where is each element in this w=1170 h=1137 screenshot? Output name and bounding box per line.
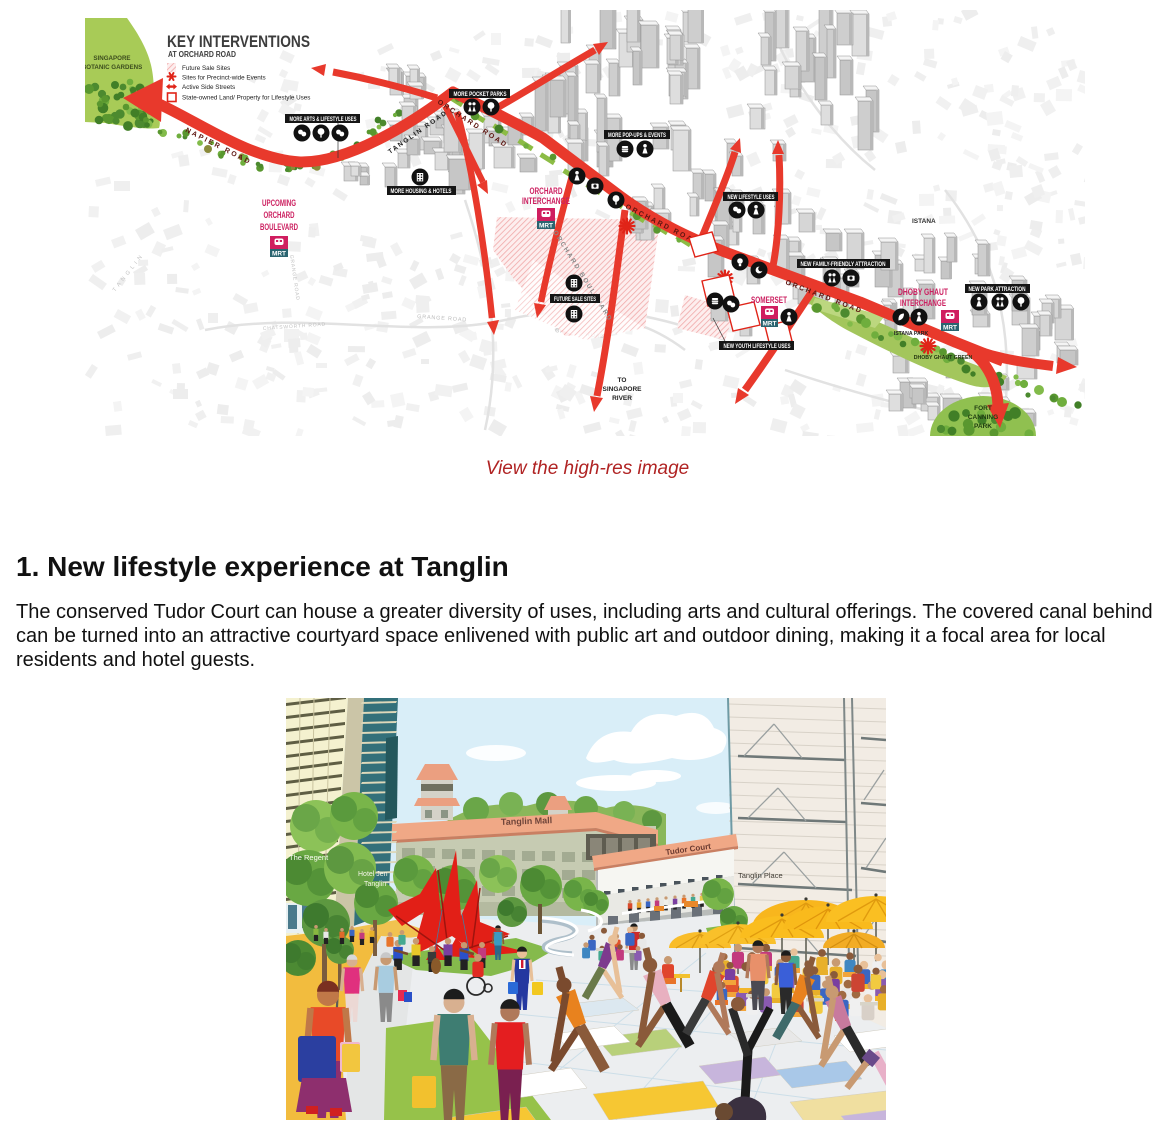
svg-text:INTERCHANGE: INTERCHANGE bbox=[900, 298, 946, 309]
svg-text:RIVER: RIVER bbox=[612, 395, 632, 402]
svg-text:MRT: MRT bbox=[943, 325, 957, 332]
svg-text:State-owned Land/ Property for: State-owned Land/ Property for Lifestyle… bbox=[182, 95, 310, 102]
svg-text:MORE HOUSING & HOTELS: MORE HOUSING & HOTELS bbox=[391, 189, 452, 195]
svg-text:PARK: PARK bbox=[974, 423, 992, 430]
svg-text:TO: TO bbox=[618, 377, 627, 384]
svg-text:Tanglin Mall: Tanglin Mall bbox=[501, 815, 553, 827]
svg-text:MORE POP-UPS & EVENTS: MORE POP-UPS & EVENTS bbox=[608, 133, 666, 139]
svg-text:MORE ARTS & LIFESTYLE USES: MORE ARTS & LIFESTYLE USES bbox=[290, 117, 357, 123]
svg-text:NEW YOUTH LIFESTYLE USES: NEW YOUTH LIFESTYLE USES bbox=[724, 344, 791, 350]
svg-text:Tanglin Place: Tanglin Place bbox=[738, 871, 783, 880]
svg-text:NEW PARK ATTRACTION: NEW PARK ATTRACTION bbox=[969, 287, 1026, 293]
svg-text:SINGAPORE: SINGAPORE bbox=[602, 386, 642, 393]
svg-text:MORE POCKET PARKS: MORE POCKET PARKS bbox=[454, 92, 507, 98]
svg-text:AT ORCHARD ROAD: AT ORCHARD ROAD bbox=[168, 50, 236, 59]
svg-text:NEW LIFESTYLE USES: NEW LIFESTYLE USES bbox=[728, 195, 775, 201]
svg-text:SOMERSET: SOMERSET bbox=[751, 295, 787, 305]
svg-text:ISTANA: ISTANA bbox=[912, 218, 936, 225]
svg-text:MRT: MRT bbox=[539, 223, 553, 230]
svg-text:SINGAPORE: SINGAPORE bbox=[93, 55, 130, 62]
svg-text:INTERCHANGE: INTERCHANGE bbox=[522, 196, 570, 206]
svg-text:BOTANIC GARDENS: BOTANIC GARDENS bbox=[85, 64, 142, 71]
svg-text:ORCHARD: ORCHARD bbox=[264, 210, 295, 221]
svg-text:DHOBY GHAUT GREEN: DHOBY GHAUT GREEN bbox=[914, 355, 973, 361]
svg-text:BOULEVARD: BOULEVARD bbox=[260, 222, 298, 233]
svg-text:Tanglin: Tanglin bbox=[364, 881, 386, 888]
svg-text:CANNING: CANNING bbox=[968, 414, 998, 421]
svg-text:NEW FAMILY-FRIENDLY ATTRACTION: NEW FAMILY-FRIENDLY ATTRACTION bbox=[801, 262, 886, 268]
svg-text:FUTURE SALE SITES: FUTURE SALE SITES bbox=[554, 297, 596, 303]
svg-text:Active Side Streets: Active Side Streets bbox=[182, 84, 235, 91]
svg-text:Future Sale Sites: Future Sale Sites bbox=[182, 65, 230, 72]
svg-text:ORCHARD: ORCHARD bbox=[530, 186, 563, 196]
svg-text:ISTANA PARK: ISTANA PARK bbox=[894, 331, 929, 337]
svg-text:FORT: FORT bbox=[974, 405, 992, 412]
svg-text:The Regent: The Regent bbox=[289, 853, 329, 862]
svg-text:MRT: MRT bbox=[762, 321, 776, 328]
svg-text:DHOBY GHAUT: DHOBY GHAUT bbox=[898, 287, 948, 298]
svg-text:UPCOMING: UPCOMING bbox=[262, 198, 296, 209]
svg-text:Sites for Precinct-wide Events: Sites for Precinct-wide Events bbox=[182, 75, 266, 82]
svg-text:Hotel Jen: Hotel Jen bbox=[358, 871, 388, 878]
svg-text:KEY INTERVENTIONS: KEY INTERVENTIONS bbox=[167, 32, 310, 51]
svg-text:MRT: MRT bbox=[272, 251, 286, 258]
